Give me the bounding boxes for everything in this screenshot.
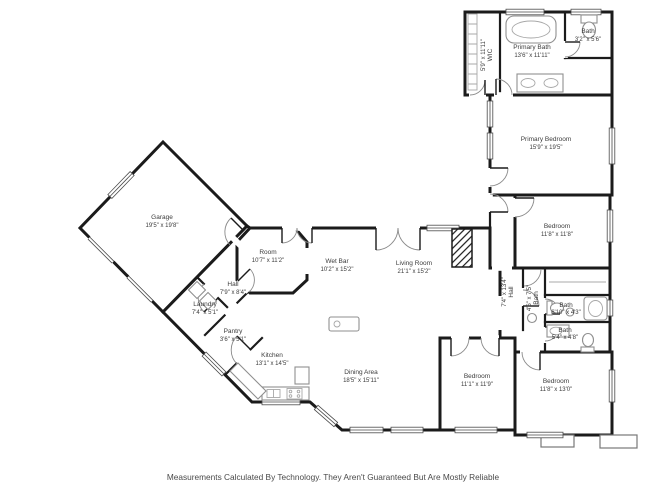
label-pantry: Pantry xyxy=(224,328,244,335)
label-dining-area-dims: 18'5" x 15'11" xyxy=(343,378,379,384)
label-wet-bar: Wet Bar xyxy=(325,258,349,265)
toilet-icon xyxy=(581,334,594,353)
kitchen-counter-icon xyxy=(262,387,309,400)
label-bath-low: Bath xyxy=(558,327,572,334)
disclaimer-text: Measurements Calculated By Technology. T… xyxy=(167,472,500,482)
floor-plan-canvas: Garage 19'5" x 19'8" Room 10'7" x 11'2" … xyxy=(0,0,667,500)
label-room: Room xyxy=(259,249,276,256)
window xyxy=(527,432,563,438)
label-kitchen: Kitchen xyxy=(261,352,283,359)
wet-bar-island-icon xyxy=(329,317,359,331)
label-primary-bedroom: Primary Bedroom xyxy=(521,136,572,143)
label-primary-bath: Primary Bath xyxy=(513,44,551,51)
label-bath-mid: Bath xyxy=(559,302,573,309)
label-bath-top-dims: 3'2" x 5'6" xyxy=(575,37,601,43)
label-bath-top: Bath xyxy=(581,28,595,35)
stoop xyxy=(600,435,637,448)
label-laundry: Laundry xyxy=(193,301,217,308)
window xyxy=(609,128,615,164)
double-vanity-icon xyxy=(517,74,563,92)
label-hall-entry-dims: 7'9" x 8'4" xyxy=(220,290,246,296)
label-garage-dims: 19'5" x 19'8" xyxy=(146,223,179,229)
label-dining-area: Dining Area xyxy=(344,369,378,376)
label-bedroom-se-dims: 11'8" x 13'0" xyxy=(540,387,572,393)
label-wet-bar-dims: 10'2" x 15'2" xyxy=(321,267,354,273)
window xyxy=(487,101,493,127)
label-bath-low-dims: 5'4" x 4'8" xyxy=(552,335,578,341)
window xyxy=(391,427,423,433)
label-primary-bath-dims: 13'6" x 11'11" xyxy=(514,53,549,59)
label-primary-bedroom-dims: 15'9" x 19'5" xyxy=(530,145,563,151)
label-garage: Garage xyxy=(151,214,173,221)
label-kitchen-dims: 13'1" x 14'5" xyxy=(256,361,289,367)
label-hall-entry: Hall xyxy=(227,281,239,288)
bathtub-icon xyxy=(584,297,607,320)
label-bath-hall-dims: 4'6" x 7'5" xyxy=(527,285,533,311)
label-living-room-dims: 21'1" x 15'2" xyxy=(398,269,431,275)
window xyxy=(506,9,544,15)
fireplace-icon xyxy=(452,229,472,267)
window xyxy=(607,300,613,316)
label-hall-bedrooms: Hall xyxy=(508,286,515,298)
window xyxy=(609,370,615,402)
label-bedroom-s: Bedroom xyxy=(464,373,490,380)
bedroom-se-walls xyxy=(515,352,612,435)
label-bath-hall: Bath xyxy=(533,291,540,305)
label-pantry-dims: 3'6" x 5'1" xyxy=(220,337,246,343)
window xyxy=(607,210,613,242)
window xyxy=(487,133,493,159)
label-bedroom-ne: Bedroom xyxy=(544,223,570,230)
window xyxy=(350,427,383,433)
floor-plan-page: Garage 19'5" x 19'8" Room 10'7" x 11'2" … xyxy=(0,0,667,500)
nook-walls xyxy=(490,195,515,268)
label-laundry-dims: 7'4" x 5'1" xyxy=(192,310,218,316)
label-bath-mid-dims: 6'10" x 4'3" xyxy=(551,310,581,316)
label-bedroom-ne-dims: 11'8" x 11'8" xyxy=(541,232,573,238)
window xyxy=(571,9,601,15)
label-wic: WIC xyxy=(487,48,494,61)
label-bedroom-s-dims: 11'1" x 11'9" xyxy=(461,382,493,388)
label-bedroom-se: Bedroom xyxy=(543,378,569,385)
sink-icon xyxy=(528,314,537,323)
label-hall-bedrooms-dims: 7'4" x 13'4" xyxy=(502,277,508,307)
label-living-room: Living Room xyxy=(396,260,432,267)
bathtub-icon xyxy=(506,16,556,43)
label-wic-dims: 5'9" x 11'11" xyxy=(481,39,487,71)
fridge-icon xyxy=(295,367,309,384)
label-room-dims: 10'7" x 11'2" xyxy=(252,258,284,264)
window xyxy=(455,427,497,433)
